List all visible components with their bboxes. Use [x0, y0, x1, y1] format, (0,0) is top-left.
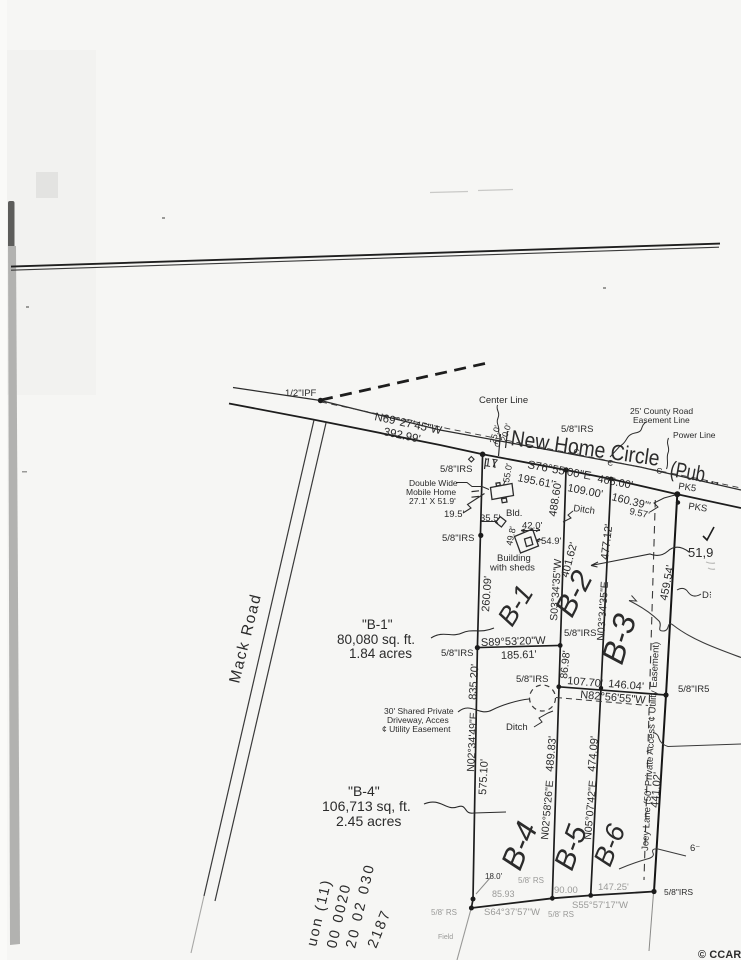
svg-text:"B-4": "B-4": [348, 783, 380, 799]
svg-text:90.00: 90.00: [554, 885, 578, 896]
svg-text:Power Line: Power Line: [673, 430, 716, 440]
svg-text:5/8"IRS: 5/8"IRS: [564, 628, 596, 639]
svg-text:35.5': 35.5': [480, 513, 500, 524]
svg-text:¢ Utility Easement: ¢ Utility Easement: [382, 724, 451, 734]
svg-text:"B-1": "B-1": [362, 617, 393, 632]
svg-text:6⁻: 6⁻: [690, 843, 700, 854]
svg-text:17: 17: [484, 455, 499, 471]
svg-text:Center Line: Center Line: [479, 395, 528, 406]
svg-text:Field: Field: [438, 934, 453, 941]
svg-text:5/8"IRS: 5/8"IRS: [664, 887, 693, 897]
svg-text:© CCAR: © CCAR: [698, 949, 741, 960]
svg-text:835.20': 835.20': [467, 664, 481, 701]
svg-text:106,713 sq, ft.: 106,713 sq, ft.: [322, 798, 411, 814]
svg-text:S64°37'57"W: S64°37'57"W: [484, 907, 540, 918]
svg-text:1/2"IPF: 1/2"IPF: [285, 388, 317, 399]
svg-text:185.61': 185.61': [501, 649, 537, 662]
svg-text:5/8"IRS: 5/8"IRS: [442, 533, 474, 544]
svg-text:5/8"IRS: 5/8"IRS: [441, 648, 473, 659]
svg-text:5/8"IRS: 5/8"IRS: [516, 674, 548, 685]
svg-text:147.25': 147.25': [598, 882, 629, 893]
svg-text:with sheds: with sheds: [489, 563, 535, 574]
svg-text:Bld.: Bld.: [506, 508, 522, 519]
svg-text:5/8' RS: 5/8' RS: [431, 908, 457, 917]
svg-text:575.10': 575.10': [477, 759, 491, 795]
svg-text:5/8"IR5: 5/8"IR5: [678, 684, 709, 695]
svg-text:Ditch: Ditch: [506, 722, 528, 733]
svg-text:S55°57'17"W: S55°57'17"W: [572, 900, 628, 911]
svg-text:5/8' RS: 5/8' RS: [518, 876, 544, 885]
svg-text:D⁝: D⁝: [702, 590, 712, 601]
svg-text:5/8"IRS: 5/8"IRS: [440, 464, 472, 475]
svg-text:80,080 sq. ft.: 80,080 sq. ft.: [337, 632, 415, 647]
svg-text:19.5': 19.5': [444, 509, 464, 520]
svg-text:18.0': 18.0': [485, 872, 503, 881]
svg-text:54.9': 54.9': [541, 536, 561, 547]
svg-text:85.93: 85.93: [492, 889, 515, 899]
svg-text:S89°53'20"W: S89°53'20"W: [481, 635, 547, 649]
svg-text:5/8' RS: 5/8' RS: [548, 910, 574, 919]
svg-text:1.84 acres: 1.84 acres: [349, 646, 412, 661]
svg-text:2.45 acres: 2.45 acres: [336, 813, 401, 829]
svg-text:260.09': 260.09': [480, 576, 494, 613]
svg-text:51,9: 51,9: [688, 545, 713, 560]
svg-text:Easement Line: Easement Line: [633, 415, 690, 425]
svg-text:5/8"IRS: 5/8"IRS: [561, 424, 593, 435]
svg-text:42.0': 42.0': [522, 521, 542, 532]
svg-text:27.1' X 51.9': 27.1' X 51.9': [409, 496, 456, 506]
